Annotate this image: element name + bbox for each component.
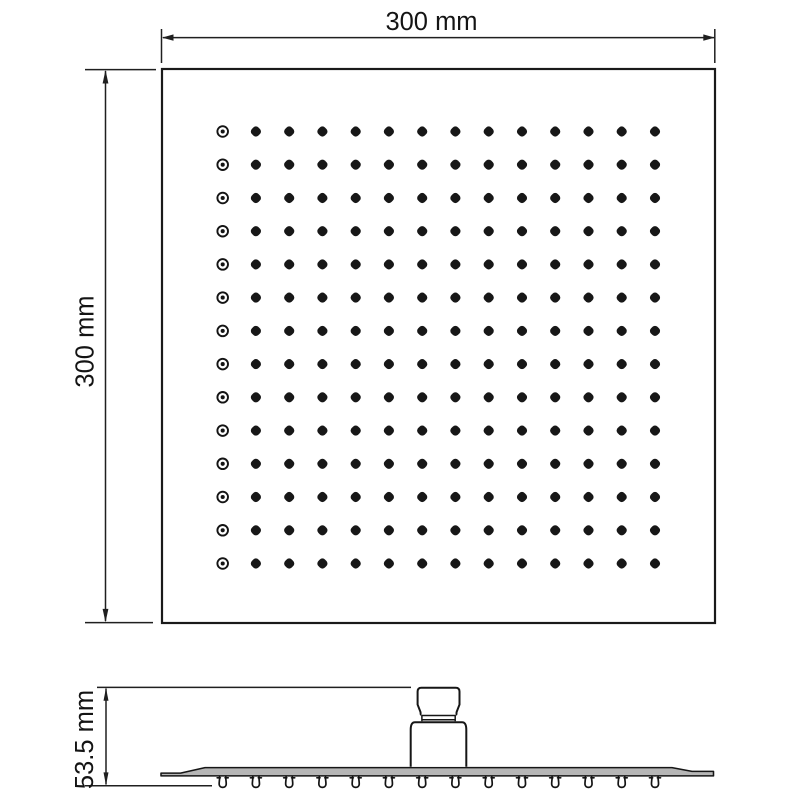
svg-text:53.5 mm: 53.5 mm xyxy=(71,690,99,789)
svg-text:300 mm: 300 mm xyxy=(385,8,477,36)
svg-text:300 mm: 300 mm xyxy=(72,295,100,387)
